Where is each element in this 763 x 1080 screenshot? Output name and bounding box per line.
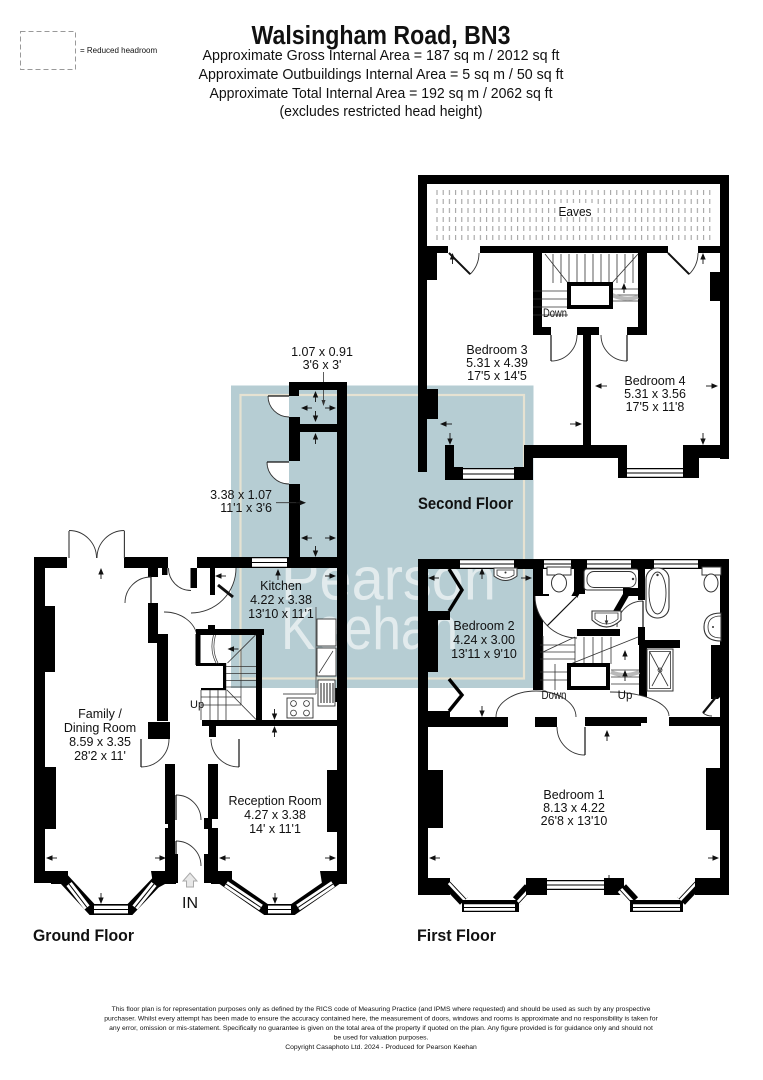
svg-text:be used for valuation purposes: be used for valuation purposes. <box>334 1035 429 1042</box>
svg-text:Eaves: Eaves <box>559 205 592 219</box>
svg-text:3.38 x 1.07: 3.38 x 1.07 <box>210 488 272 502</box>
svg-text:Walsingham Road, BN3: Walsingham Road, BN3 <box>252 22 511 50</box>
svg-text:Up: Up <box>618 690 633 702</box>
svg-text:Dining Room: Dining Room <box>64 721 136 735</box>
svg-text:5.31 x 3.56: 5.31 x 3.56 <box>624 387 686 401</box>
svg-text:any error, omission or mis-sta: any error, omission or mis-statement. Sp… <box>109 1025 653 1032</box>
svg-text:1.07 x 0.91: 1.07 x 0.91 <box>291 345 353 359</box>
svg-text:(excludes restricted head heig: (excludes restricted head height) <box>280 103 483 120</box>
svg-text:17'5 x 14'5: 17'5 x 14'5 <box>467 369 527 383</box>
svg-text:IN: IN <box>182 895 198 912</box>
svg-text:Approximate Gross Internal Are: Approximate Gross Internal Area = 187 sq… <box>203 47 561 64</box>
svg-text:13'10 x 11'1: 13'10 x 11'1 <box>248 607 314 621</box>
svg-text:Family /: Family / <box>78 707 122 721</box>
svg-text:Bedroom 4: Bedroom 4 <box>624 374 685 388</box>
svg-text:purchaser. Whilst every attemp: purchaser. Whilst every attempt has been… <box>104 1016 658 1023</box>
svg-text:Kitchen: Kitchen <box>260 579 302 593</box>
svg-text:28'2 x 11': 28'2 x 11' <box>74 749 126 763</box>
svg-text:First Floor: First Floor <box>417 927 497 945</box>
svg-text:Second Floor: Second Floor <box>418 495 514 513</box>
svg-text:Bedroom 3: Bedroom 3 <box>466 343 527 357</box>
svg-text:Up: Up <box>190 699 204 711</box>
svg-text:= Reduced headroom: = Reduced headroom <box>80 46 158 55</box>
svg-text:4.24 x 3.00: 4.24 x 3.00 <box>453 633 515 647</box>
svg-text:8.13 x 4.22: 8.13 x 4.22 <box>543 801 605 815</box>
svg-text:5.31 x 4.39: 5.31 x 4.39 <box>466 356 528 370</box>
svg-text:4.22 x 3.38: 4.22 x 3.38 <box>250 593 312 607</box>
svg-text:8.59 x 3.35: 8.59 x 3.35 <box>69 735 131 749</box>
svg-text:17'5 x 11'8: 17'5 x 11'8 <box>626 400 685 414</box>
svg-text:Bedroom 2: Bedroom 2 <box>453 619 514 633</box>
svg-text:This floor plan is for represe: This floor plan is for representation pu… <box>112 1006 651 1013</box>
svg-text:Ground Floor: Ground Floor <box>33 927 135 945</box>
svg-text:11'1 x 3'6: 11'1 x 3'6 <box>220 501 272 515</box>
svg-text:14' x 11'1: 14' x 11'1 <box>249 822 301 836</box>
svg-text:Down: Down <box>542 690 567 702</box>
svg-text:Approximate Outbuildings Inter: Approximate Outbuildings Internal Area =… <box>199 66 565 83</box>
svg-text:Copyright Casaphoto Ltd. 2024: Copyright Casaphoto Ltd. 2024 - Produced… <box>285 1044 477 1051</box>
svg-text:Reception Room: Reception Room <box>228 794 321 808</box>
svg-text:3'6 x 3': 3'6 x 3' <box>303 358 342 372</box>
svg-text:13'11 x 9'10: 13'11 x 9'10 <box>451 647 517 661</box>
svg-text:Bedroom 1: Bedroom 1 <box>543 788 604 802</box>
svg-text:4.27 x 3.38: 4.27 x 3.38 <box>244 808 306 822</box>
svg-text:Down: Down <box>543 308 567 320</box>
svg-text:26'8 x 13'10: 26'8 x 13'10 <box>541 814 608 828</box>
svg-text:Approximate Total Internal Are: Approximate Total Internal Area = 192 sq… <box>210 85 554 102</box>
